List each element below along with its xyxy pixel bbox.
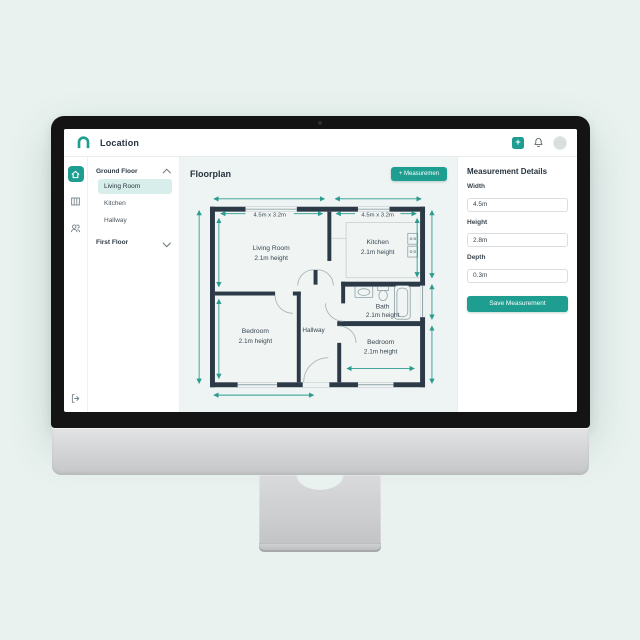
add-measurement-button[interactable]: + Measuremen	[391, 167, 447, 181]
monitor-chin	[52, 428, 589, 475]
monitor-stand	[259, 475, 381, 552]
nav-item-hallway[interactable]: Hallway	[98, 213, 172, 228]
kitchen-dimension-label: 4.5m x 3.2m	[361, 212, 394, 218]
users-icon	[70, 223, 81, 234]
sidebar-item-map[interactable]	[68, 193, 84, 209]
ground-floor-label: Ground Floor	[96, 168, 138, 175]
page-title: Location	[100, 138, 139, 148]
stand-notch	[296, 475, 344, 490]
living-room-name: Living Room	[253, 245, 291, 252]
living-room-height: 2.1m height	[254, 255, 288, 262]
measurement-details-title: Measurement Details	[467, 167, 568, 176]
chevron-up-icon	[162, 169, 170, 177]
app-logo-icon	[76, 135, 91, 150]
floor-nav-panel: Ground Floor Living Room Kitchen Hallway…	[88, 157, 180, 412]
width-input[interactable]	[467, 198, 568, 212]
first-floor-label: First Floor	[96, 239, 128, 246]
app-window: Location +	[64, 129, 577, 412]
sidebar-item-users[interactable]	[68, 220, 84, 236]
logout-button[interactable]	[70, 393, 81, 404]
monitor-camera-dot	[318, 121, 322, 125]
hallway-name: Hallway	[302, 327, 325, 334]
notifications-bell-icon[interactable]	[533, 137, 544, 148]
floorplan-panel: Floorplan + Measuremen	[180, 157, 457, 412]
depth-label: Depth	[467, 254, 568, 261]
user-avatar[interactable]	[553, 136, 567, 150]
floorplan-title: Floorplan	[190, 169, 231, 179]
app-header: Location +	[64, 129, 577, 157]
sidebar-item-home[interactable]	[68, 166, 84, 182]
kitchen-height: 2.1m height	[361, 249, 395, 256]
sidebar-rail	[64, 157, 88, 412]
bedroom1-name: Bedroom	[242, 328, 270, 335]
depth-input[interactable]	[467, 269, 568, 283]
bath-height: 2.1m height	[366, 312, 400, 319]
add-button[interactable]: +	[512, 137, 524, 149]
nav-item-living-room[interactable]: Living Room	[98, 179, 172, 194]
height-input[interactable]	[467, 233, 568, 247]
app-body: Ground Floor Living Room Kitchen Hallway…	[64, 157, 577, 412]
floorplan-canvas[interactable]: 4.5m x 3.2m 4.5m x 3.2m Living Room 2.1m…	[190, 187, 447, 409]
logout-icon	[70, 393, 81, 404]
bath-toilet-tank	[378, 287, 389, 291]
bedroom2-height: 2.1m height	[364, 349, 398, 356]
width-label: Width	[467, 183, 568, 190]
save-measurement-button[interactable]: Save Measurement	[467, 296, 568, 312]
stand-foot	[259, 543, 381, 552]
bedroom1-height: 2.1m height	[239, 338, 273, 345]
nav-item-kitchen[interactable]: Kitchen	[98, 196, 172, 211]
bath-toilet	[379, 290, 387, 300]
height-label: Height	[467, 219, 568, 226]
bedroom2-name: Bedroom	[367, 339, 395, 346]
nav-section-ground-floor[interactable]: Ground Floor	[95, 166, 172, 177]
measurement-details-panel: Measurement Details Width Height Depth S…	[457, 157, 577, 412]
map-icon	[70, 196, 81, 207]
kitchen-name: Kitchen	[367, 239, 390, 246]
living-room-dimension-label: 4.5m x 3.2m	[253, 212, 286, 218]
nav-section-first-floor[interactable]: First Floor	[95, 237, 172, 248]
home-icon	[70, 169, 81, 180]
bath-name: Bath	[376, 303, 390, 310]
scene: Location +	[0, 0, 640, 640]
chevron-down-icon	[162, 239, 170, 247]
